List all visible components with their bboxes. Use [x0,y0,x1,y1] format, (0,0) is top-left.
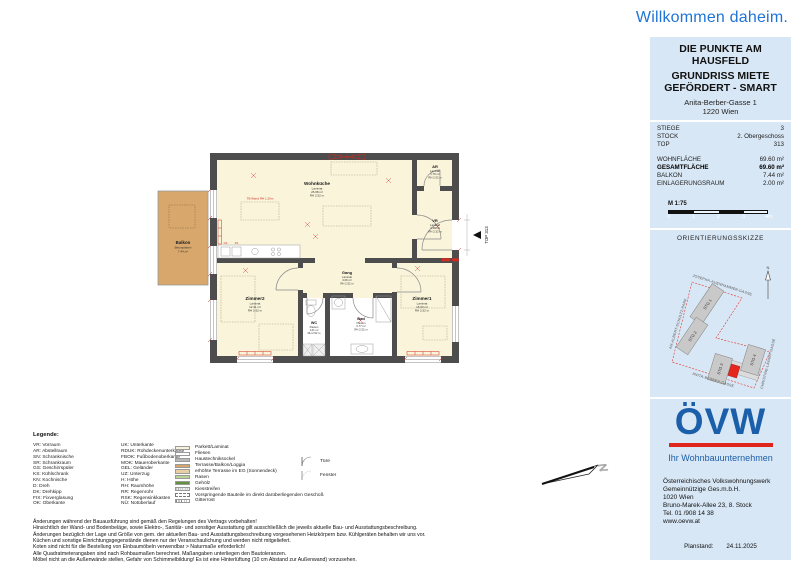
planstand-row: Planstand:24.11.2025 [650,543,791,550]
info-label: WOHNFLÄCHE [657,156,701,164]
info-label: STIEGE [657,125,680,133]
swatch-vorspringende-bauteile [175,493,190,497]
brand-address-line: Tel. 01 /908 14 38 [663,510,791,518]
label-sub: RH 2.52 m [428,175,442,179]
legend-item: OK: Oberkante [33,501,74,507]
scale-tick: 2 [717,214,720,220]
swatch-gehoelz [175,481,190,485]
info-row-wohnflaeche: WOHNFLÄCHE 69.60 m² [650,156,791,164]
scale-tick: 3 [742,214,745,220]
info-row-stock: STOCK 2. Obergeschoss [650,133,791,141]
legend-item: SN: Schranknische [33,455,74,461]
scale-tick: 4m [765,214,773,220]
info-value: 2.00 m² [763,180,784,188]
swatch-terrasse [175,464,190,468]
north-label: N [767,265,770,270]
orientation-sketch: STG 1 STG 2 STG 3 STG 4 JOSEPHA-AUENHAMM… [650,242,791,394]
label-sub: RH 2.52 m [354,327,368,331]
north-arrow-icon: N [766,265,771,299]
swatch-label: Fliesen [195,451,210,456]
legend-heading: Legende: [33,432,633,438]
swatch-erhoehte-terrasse [175,469,190,473]
info-row-top: TOP 313 [650,141,791,149]
entrance-top-label: TOP 313 [484,226,489,244]
address-line-1: Anita-Berber-Gasse 1 [650,98,791,107]
info-row-gesamtflaeche: GESAMTFLÄCHE 69.60 m² [650,164,791,172]
info-row-einlagerungsraum: EINLAGERUNGSRAUM 2.00 m² [650,180,791,188]
door-icon [301,456,312,467]
brand-tagline: Ihr Wohnbauunternehmen [650,453,791,463]
room-wohnkueche [217,160,412,258]
swatch-gitterrost [175,499,190,503]
label-sub: RH 2.52 m [340,281,354,285]
title-panel: DIE PUNKTE AM HAUSFELD GRUNDRISS MIETE G… [650,37,791,120]
footnotes: Änderungen während der Bauausführung sin… [33,519,633,563]
planstand-label: Planstand: [684,543,713,550]
info-label: EINLAGERUNGSRAUM [657,180,724,188]
info-value: 69.60 m² [759,164,784,172]
label-wohnkueche: Wohnküche [304,181,330,186]
info-value: 2. Obergeschoss [737,133,784,141]
footnote-line: Möbel nicht an die Außenwände stellen, G… [33,557,633,563]
window-icon [301,470,312,481]
entrance-opening [452,220,459,250]
label-sub: RH 2.52 m [310,194,325,198]
swatch-label: erhöhte Terrasse im EG (Sonnendeck) [195,469,277,474]
swatch-rasen [175,475,190,479]
label-zimmer2: Zimmer2 [245,296,265,301]
label-sub: RH 2.52 m [248,309,263,313]
info-label: STOCK [657,133,678,141]
swatch-label: Gitterrost [195,498,215,503]
swatch-label: Rasen [195,475,209,480]
swatch-label: Kiesstreifen [195,487,220,492]
swatch-fliesen [175,452,190,456]
address-line-2: 1220 Wien [650,107,791,116]
info-label: GESAMTFLÄCHE [657,164,709,172]
logo-red-bar [669,443,773,447]
info-row-stiege: STIEGE 3 [650,125,791,133]
welcome-heading: Willkommen daheim. [488,9,788,27]
entrance-arrow-icon [473,231,481,239]
kitchen-gs-label: GS [224,241,228,245]
brand-website: www.oevw.at [663,518,791,526]
info-row-balkon: BALKON 7.44 m² [650,172,791,180]
project-title: DIE PUNKTE AM HAUSFELD [650,37,791,67]
scale-label: M 1:75 [668,201,791,207]
balkon-name: Balkon [176,240,191,245]
swatch-label: Gehölz [195,481,210,486]
legend-window-row: Fenster [301,468,336,482]
street-christine: CHRISTINE-LAVANT-GASSE [760,338,777,390]
orientation-title: ORIENTIERUNGSSKIZZE [650,230,791,242]
swatch-parkett [175,446,190,450]
dimension-lines [464,214,470,256]
swatch-kiesstreifen [175,487,190,491]
legend-abbreviations-col1: VR: Vorraum AR: Abstellraum SN: Schrankn… [33,443,74,507]
unit-info-panel: STIEGE 3 STOCK 2. Obergeschoss TOP 313 W… [650,122,791,228]
info-value: 69.60 m² [760,156,784,164]
label-sub: RH 2.52 m [308,331,322,335]
scale-tick: 1 [692,214,695,220]
info-label: TOP [657,141,670,149]
legend: Legende: VR: Vorraum AR: Abstellraum SN:… [33,432,633,518]
brand-address-line: Österreichisches Volkswohnungswerk [663,478,791,486]
kitchen-counter [218,245,300,258]
label-zimmer1: Zimmer1 [412,296,432,301]
balkon-area: 7.44 m² [178,250,188,254]
project-address: Anita-Berber-Gasse 1 1220 Wien [650,94,791,116]
floor-plan: Balkon Betonplatten 7.44 m² [155,128,507,373]
legend-door-row: Türe [301,454,336,468]
scale-tick: 0 [667,214,670,220]
legend-swatch-row: Gitterrost [175,498,324,504]
scale-ticks: 0 1 2 3 4m [668,214,776,221]
label-sub: RH 2.52 m [428,229,442,233]
brand-panel: ÖVW Ihr Wohnbauunternehmen Österreichisc… [650,399,791,560]
legend-symbols: Türe Fenster [301,454,336,482]
brand-address-line: Gemeinnützige Ges.m.b.H. [663,486,791,494]
kitchen-ks-label: KS [235,241,239,245]
swatch-label: Terrasse/Balkon/Loggia [195,463,245,468]
planstand-date: 24.11.2025 [726,543,757,550]
swatch-label: Vorspringende Bauteile im direkt darüber… [195,493,324,498]
swatch-haustechnik [175,458,190,462]
orientation-panel: ORIENTIERUNGSSKIZZE STG 1 STG 2 STG 3 ST… [650,230,791,397]
window-label: Fenster [320,473,336,478]
brand-address: Österreichisches Volkswohnungswerk Gemei… [663,478,791,526]
label-sub: RH 2.52 m [415,309,430,313]
door-label: Türe [320,459,330,464]
brand-address-line: 1020 Wien [663,494,791,502]
info-value: 313 [774,141,784,149]
brand-address-line: Bruno-Marek-Allee 23, 8. Stock [663,502,791,510]
plan-type-title: GRUNDRISS MIETE GEFÖRDERT - SMART [650,67,791,94]
tb-wall-note: TB Wand RH 1.20m [247,197,274,201]
oevw-logo: ÖVW [650,402,791,442]
balcony: Balkon Betonplatten 7.44 m² [158,191,208,285]
label-wc: WC [311,321,318,325]
swatch-label: Parkett/Laminat [195,445,229,450]
info-label: BALKON [657,172,682,180]
info-value: 7.44 m² [763,172,784,180]
swatch-label: Haustechniksockel [195,457,235,462]
info-value: 3 [781,125,784,133]
